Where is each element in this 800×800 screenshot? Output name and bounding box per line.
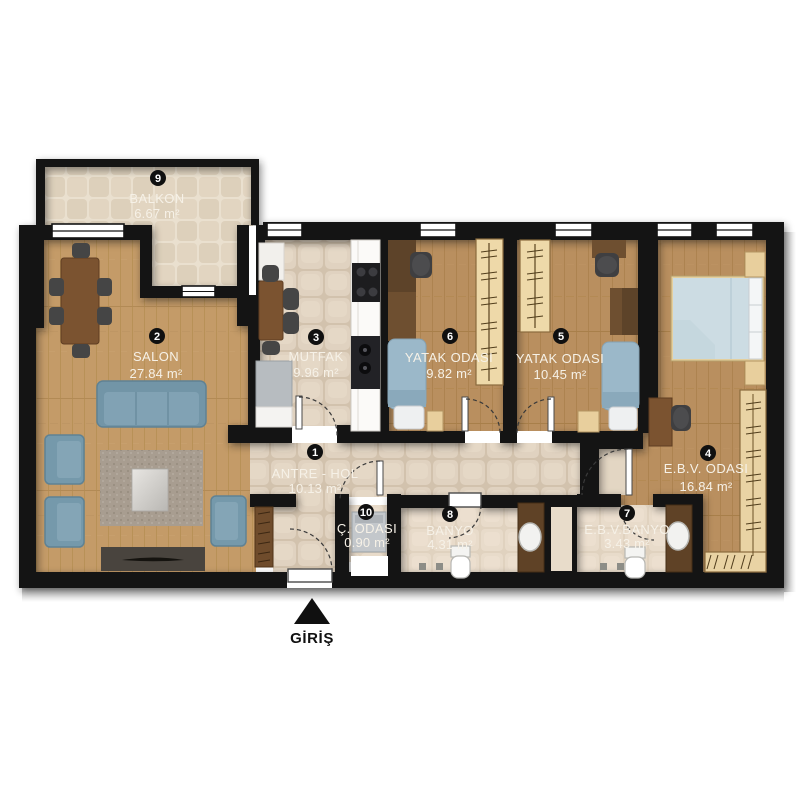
svg-text:8: 8 <box>447 509 453 521</box>
svg-text:E.B.V.BANYO: E.B.V.BANYO <box>584 522 670 537</box>
svg-text:9.82 m²: 9.82 m² <box>426 366 472 381</box>
svg-text:1: 1 <box>312 447 318 459</box>
svg-text:27.84 m²: 27.84 m² <box>130 366 183 381</box>
svg-text:Ç. ODASI: Ç. ODASI <box>337 521 397 536</box>
svg-text:ANTRE - HOL: ANTRE - HOL <box>272 466 359 481</box>
svg-text:YATAK ODASI: YATAK ODASI <box>516 351 604 366</box>
svg-text:3.43 m²: 3.43 m² <box>604 536 650 551</box>
svg-text:10: 10 <box>360 507 372 519</box>
svg-text:5: 5 <box>558 331 564 343</box>
svg-text:4: 4 <box>705 448 712 460</box>
svg-text:E.B.V. ODASI: E.B.V. ODASI <box>664 461 749 476</box>
svg-text:10.45 m²: 10.45 m² <box>534 367 587 382</box>
svg-text:7: 7 <box>624 508 630 520</box>
svg-text:9: 9 <box>155 173 161 185</box>
svg-text:16.84 m²: 16.84 m² <box>680 479 733 494</box>
svg-text:6: 6 <box>447 331 453 343</box>
svg-text:9.96 m²: 9.96 m² <box>293 365 339 380</box>
svg-text:YATAK ODASI: YATAK ODASI <box>405 350 493 365</box>
svg-text:GİRİŞ: GİRİŞ <box>290 630 334 647</box>
svg-text:MUTFAK: MUTFAK <box>288 349 343 364</box>
svg-text:2: 2 <box>154 331 160 343</box>
svg-text:3: 3 <box>313 332 319 344</box>
svg-text:BANYO: BANYO <box>426 523 474 538</box>
svg-text:6.67 m²: 6.67 m² <box>134 206 180 221</box>
svg-text:SALON: SALON <box>133 349 179 364</box>
svg-text:BALKON: BALKON <box>129 191 184 206</box>
svg-text:0.90 m²: 0.90 m² <box>344 535 390 550</box>
svg-text:10.13 m²: 10.13 m² <box>289 481 342 496</box>
svg-text:4.31 m²: 4.31 m² <box>427 537 473 552</box>
